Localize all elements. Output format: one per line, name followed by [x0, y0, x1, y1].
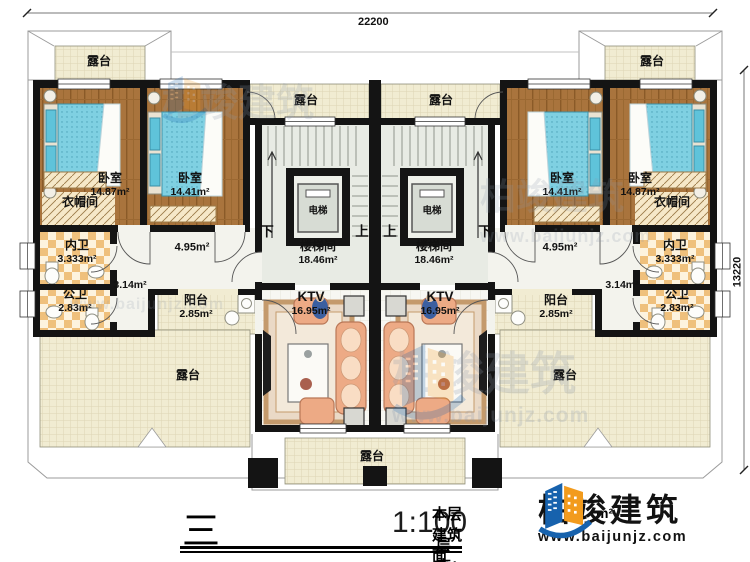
room-label-terrace-bottom-left: 露台: [176, 369, 200, 383]
area-label-corridor: 3.14m²: [605, 279, 638, 291]
pillar: [472, 458, 502, 488]
corridor-floor: [116, 290, 150, 337]
room-label-inner-bath: 内卫3.333m²: [57, 239, 96, 265]
stair-down-label: 下: [260, 224, 274, 240]
room-label-terrace-center-right: 露台: [429, 94, 453, 108]
floor-plan: 露台 露台 露台 露台 卧室14.87m² 卧室14.41m² 卧室14.41m…: [0, 0, 750, 562]
brand-logo: 柏竣建筑 www.baijunjz.com: [538, 477, 750, 561]
room-label-bedroom: 卧室14.41m²: [170, 172, 209, 198]
room-label-public-bath: 公卫2.83m²: [660, 288, 693, 314]
floor-height-text: 层高：3.3m: [436, 534, 470, 562]
corridor-floor: [600, 290, 634, 337]
room-label-terrace-top-left: 露台: [87, 55, 111, 69]
stair-up-label: 上: [355, 224, 369, 240]
pillar: [363, 466, 387, 486]
room-label-balcony: 阳台2.85m²: [179, 294, 212, 320]
room-label-ktv: KTV16.95m²: [291, 289, 330, 317]
stair-down-label: 下: [478, 224, 492, 240]
room-label-bedroom: 卧室14.87m²: [620, 172, 659, 198]
room-label-elevator: 电梯: [422, 207, 441, 218]
area-label-corridor: 3.14m²: [113, 279, 146, 291]
room-label-terrace-bottom-right: 露台: [553, 369, 577, 383]
brand-icon: [538, 477, 592, 543]
pillar: [248, 458, 278, 488]
room-label-cloakroom: 衣帽间: [654, 196, 690, 210]
room-label-bedroom: 卧室14.41m²: [542, 172, 581, 198]
room-label-terrace-bottom-center: 露台: [360, 450, 384, 464]
room-label-terrace-top-right: 露台: [640, 55, 664, 69]
area-label-hall: 4.95m²: [543, 242, 578, 255]
room-label-elevator: 电梯: [308, 207, 327, 218]
room-label-stairwell: 楼梯间18.46m²: [414, 240, 453, 266]
plan-title: 三层平面图: [182, 500, 223, 562]
room-label-public-bath: 公卫2.83m²: [58, 288, 91, 314]
room-label-cloakroom: 衣帽间: [62, 196, 98, 210]
room-label-balcony: 阳台2.85m²: [539, 294, 572, 320]
room-label-inner-bath: 内卫3.333m²: [655, 239, 694, 265]
title-underline: [180, 546, 462, 549]
dimension-depth: 13220: [731, 257, 743, 288]
stair-up-label: 上: [383, 224, 397, 240]
room-label-ktv: KTV16.95m²: [420, 289, 459, 317]
title-underline: [180, 551, 462, 553]
room-label-bedroom: 卧室14.87m²: [90, 172, 129, 198]
room-label-terrace-center-left: 露台: [294, 94, 318, 108]
room-label-stairwell: 楼梯间18.46m²: [298, 240, 337, 266]
area-label-hall: 4.95m²: [175, 242, 210, 255]
dimension-width: 22200: [358, 16, 389, 28]
